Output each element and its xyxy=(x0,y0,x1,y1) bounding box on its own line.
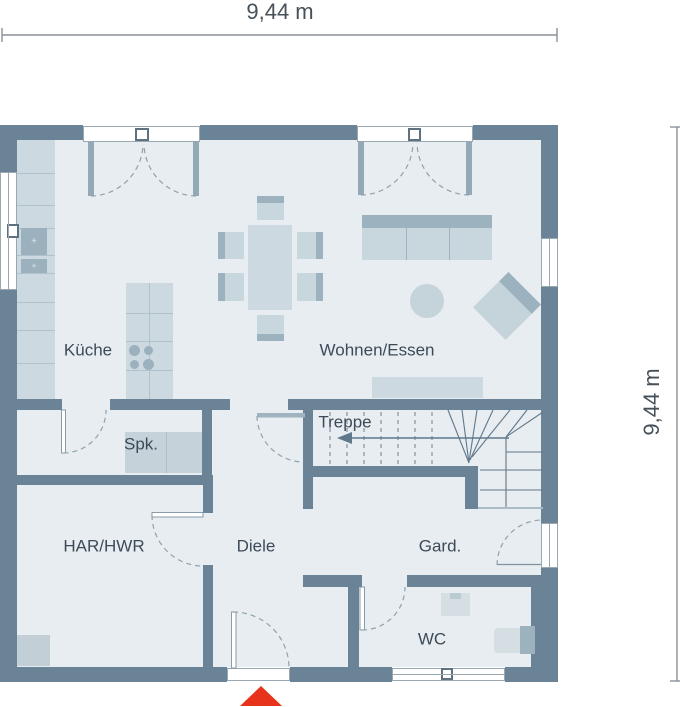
french-door-right-handle xyxy=(408,128,421,141)
dimension-height-label: 9,44 m xyxy=(641,368,663,435)
wall-kueche-spk-left xyxy=(17,399,62,410)
dimension-width-label: 9,44 m xyxy=(246,1,313,23)
wall-diele-wc xyxy=(303,575,362,587)
dining-chair xyxy=(218,232,244,259)
wall-bottom-left xyxy=(0,667,227,682)
room-label-wohnen-essen: Wohnen/Essen xyxy=(320,342,435,359)
wall-wc-left xyxy=(348,587,359,667)
wall-stair-top xyxy=(288,399,545,410)
cooktop-burner xyxy=(129,345,140,356)
wc-toilet-tank xyxy=(520,626,535,654)
wc-toilet xyxy=(494,628,520,653)
room-label-kueche: Küche xyxy=(64,342,112,359)
room-label-treppe: Treppe xyxy=(318,414,371,431)
wall-kueche-spk-right xyxy=(110,399,230,410)
window-left-handle xyxy=(7,224,19,238)
sideboard xyxy=(372,377,483,398)
window-right-living xyxy=(541,238,558,287)
cooktop-burner xyxy=(130,360,139,369)
dining-chair xyxy=(297,232,323,259)
coffee-table xyxy=(410,284,444,318)
french-door-left-leaf xyxy=(193,142,199,196)
french-door-right-leaf xyxy=(466,142,472,195)
wall-stair-bottom xyxy=(313,466,465,477)
room-label-gard: Gard. xyxy=(419,538,462,555)
kitchen-island xyxy=(126,283,173,399)
har-equipment xyxy=(17,635,50,666)
cooktop-burner xyxy=(144,346,153,355)
room-label-har-hwr: HAR/HWR xyxy=(63,538,144,555)
room-label-diele: Diele xyxy=(237,538,276,555)
window-right-gard xyxy=(541,523,558,568)
wall-top-mid xyxy=(200,125,357,140)
dining-chair xyxy=(257,315,284,341)
wall-bottom-mid xyxy=(290,667,392,682)
room-label-wc: WC xyxy=(418,631,446,648)
window-wc-handle xyxy=(441,668,453,680)
sofa xyxy=(362,215,492,260)
wall-stair-stub xyxy=(465,466,478,509)
dining-chair xyxy=(218,273,244,301)
wall-right-upper xyxy=(541,125,558,238)
french-door-right-leaf xyxy=(358,142,364,195)
cooktop-burner xyxy=(143,359,154,370)
dimension-line-top xyxy=(2,28,557,42)
french-door-left-handle xyxy=(135,128,149,141)
wall-har-right-top xyxy=(203,478,213,513)
dining-chair xyxy=(297,273,323,301)
french-door-left-leaf xyxy=(88,142,94,196)
wall-gard-wc xyxy=(407,575,545,587)
wall-stair-left xyxy=(303,399,313,509)
kitchen-counter: + + xyxy=(17,140,55,399)
wall-left-upper xyxy=(0,125,17,172)
wall-left-lower xyxy=(0,290,17,682)
entrance-door-threshold xyxy=(227,668,290,681)
wall-spk-right xyxy=(202,410,212,478)
kitchen-appliance: + xyxy=(21,259,47,273)
dimension-line-right xyxy=(670,127,680,681)
dining-chair xyxy=(257,196,284,220)
entrance-arrow xyxy=(240,686,282,706)
kitchen-sink: + xyxy=(21,228,47,255)
wc-sink xyxy=(441,593,470,616)
room-label-spk: Spk. xyxy=(124,436,158,453)
wall-spk-har xyxy=(17,475,213,485)
floor-plan: + + xyxy=(0,0,680,707)
dining-table xyxy=(248,225,292,310)
wall-har-right-bottom xyxy=(203,565,213,667)
